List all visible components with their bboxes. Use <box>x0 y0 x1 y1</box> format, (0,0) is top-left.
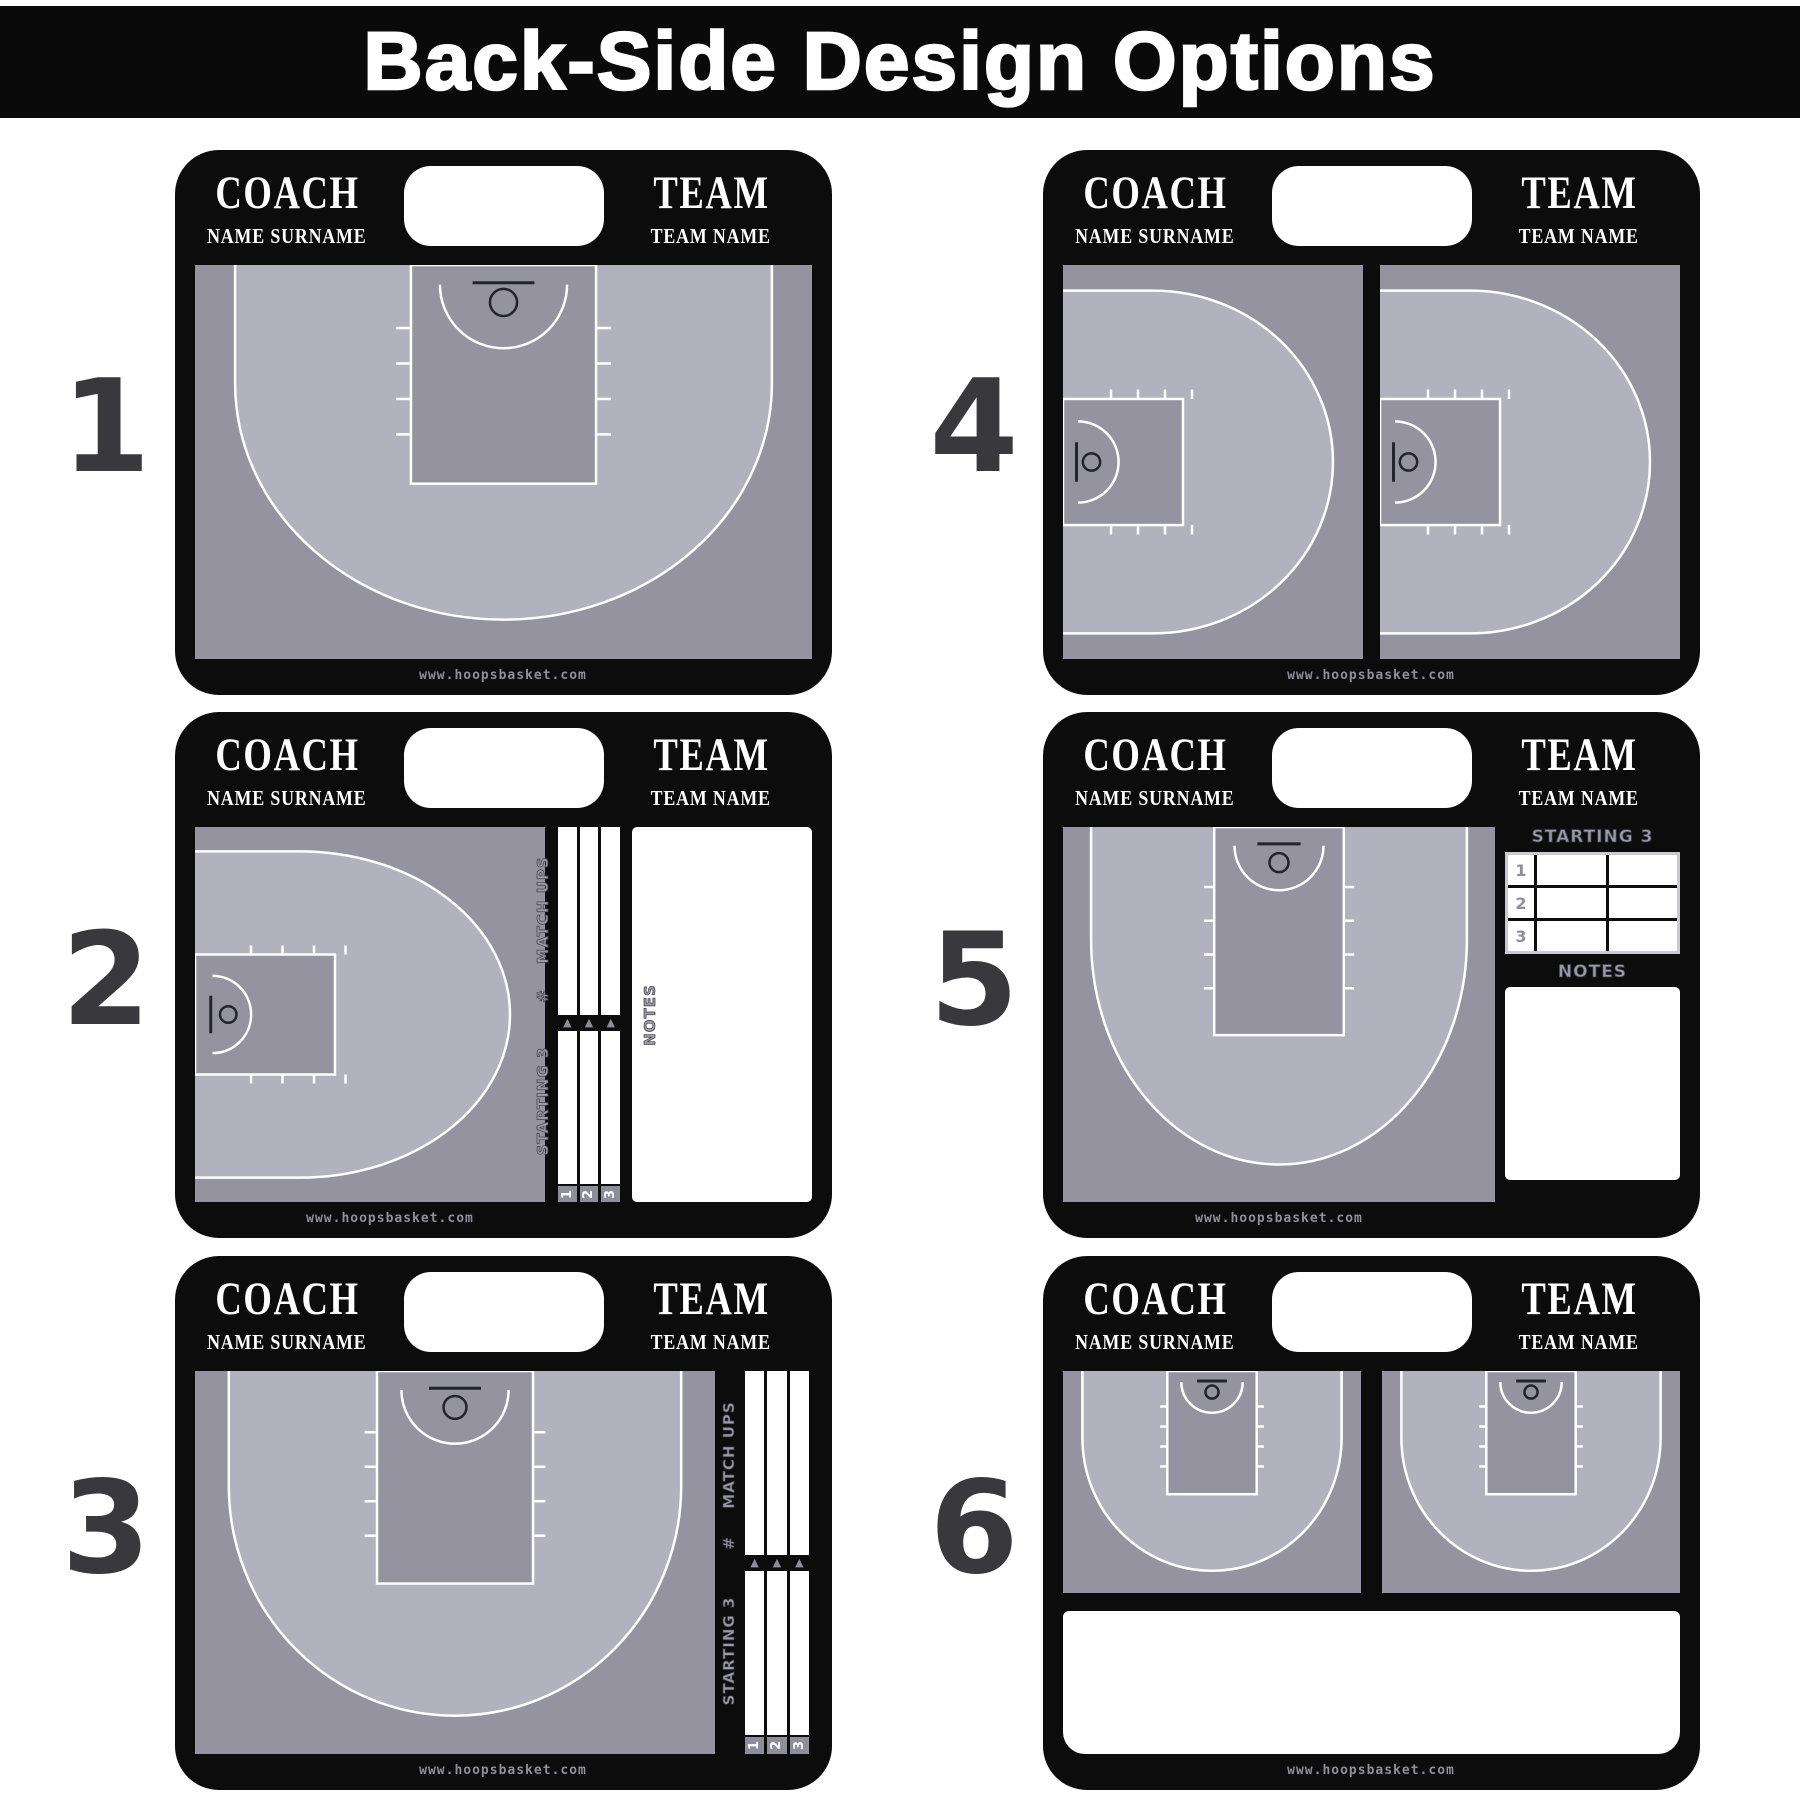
team-name: TEAM NAME <box>1519 224 1639 249</box>
writein-cell <box>1537 855 1606 885</box>
website-url: www.hoopsbasket.com <box>1079 1211 1479 1229</box>
page-title: Back-Side Design Options <box>363 15 1436 109</box>
writein-column <box>745 1571 764 1735</box>
writein-column <box>580 1031 599 1184</box>
coach-label: COACH <box>215 1272 359 1326</box>
team-label: TEAM <box>1521 728 1637 782</box>
slot-number: 1 <box>745 1737 764 1754</box>
design-option-4-board: COACH NAME SURNAME TEAM TEAM NAME www.ho… <box>1043 150 1700 695</box>
website-url: www.hoopsbasket.com <box>1171 668 1571 686</box>
halfcourt-top-diagram <box>1063 827 1495 1202</box>
team-label: TEAM <box>1521 1272 1637 1326</box>
team-header: TEAM TEAM NAME <box>1469 166 1689 249</box>
coach-name: NAME SURNAME <box>1075 1330 1234 1355</box>
option-number: 4 <box>904 353 1044 503</box>
starting3-label: STARTING 3 <box>534 1046 552 1155</box>
writein-column <box>601 1031 620 1184</box>
matchups-label: MATCH UPS <box>534 856 552 963</box>
up-triangle-icon: ▲ <box>601 1015 620 1031</box>
option-number: 3 <box>36 1453 176 1603</box>
board-body <box>1063 265 1680 659</box>
coach-header: COACH NAME SURNAME <box>177 1272 397 1355</box>
writein-column <box>790 1571 809 1735</box>
coach-header: COACH NAME SURNAME <box>1045 166 1265 249</box>
halfcourt-side-diagram <box>195 827 545 1202</box>
design-option-5-board: COACH NAME SURNAME TEAM TEAM NAME STARTI… <box>1043 712 1700 1238</box>
slot-number: 2 <box>580 1186 599 1202</box>
notes-label: NOTES <box>641 984 659 1046</box>
starting3-label: STARTING 3 <box>1505 827 1680 847</box>
writein-cell <box>1609 921 1678 951</box>
team-label: TEAM <box>653 1272 769 1326</box>
coach-label: COACH <box>215 728 359 782</box>
table-row: 2 <box>1508 888 1677 918</box>
halfcourt-top-diagram <box>1382 1371 1680 1593</box>
slot-number: 2 <box>767 1737 786 1754</box>
team-label: TEAM <box>1521 166 1637 220</box>
handle-cutout <box>1272 728 1472 808</box>
coach-name: NAME SURNAME <box>207 224 366 249</box>
team-header: TEAM TEAM NAME <box>601 166 821 249</box>
coach-header: COACH NAME SURNAME <box>177 166 397 249</box>
option-number: 1 <box>36 353 176 503</box>
halfcourt-side-diagram <box>1063 265 1363 659</box>
team-name: TEAM NAME <box>651 224 771 249</box>
team-label: TEAM <box>653 166 769 220</box>
up-triangle-icon: ▲ <box>790 1555 809 1571</box>
slot-number: 3 <box>790 1737 809 1754</box>
team-header: TEAM TEAM NAME <box>1469 728 1689 811</box>
website-url: www.hoopsbasket.com <box>1171 1763 1571 1781</box>
design-option-2-board: COACH NAME SURNAME TEAM TEAM NAME MATCH … <box>175 712 832 1238</box>
up-triangle-icon: ▲ <box>580 1015 599 1031</box>
coach-label: COACH <box>215 166 359 220</box>
row-number: 2 <box>1508 888 1534 918</box>
board-body: STARTING 3 1 2 <box>1063 827 1680 1202</box>
row-number: 1 <box>1508 855 1534 885</box>
handle-cutout <box>404 728 604 808</box>
team-name: TEAM NAME <box>1519 1330 1639 1355</box>
website-url: www.hoopsbasket.com <box>303 1763 703 1781</box>
notes-area <box>1063 1611 1680 1754</box>
team-name: TEAM NAME <box>651 786 771 811</box>
writein-column <box>767 1571 786 1735</box>
team-name: TEAM NAME <box>651 1330 771 1355</box>
slot-number: 1 <box>558 1186 577 1202</box>
handle-cutout <box>1272 1272 1472 1352</box>
website-url: www.hoopsbasket.com <box>303 668 703 686</box>
website-url: www.hoopsbasket.com <box>190 1211 590 1229</box>
title-banner: Back-Side Design Options <box>0 6 1800 118</box>
board-body: MATCH UPS # STARTING 3 ▲▲▲ 123 <box>195 1371 812 1754</box>
sidebar-labels: MATCH UPS # STARTING 3 <box>530 827 556 1202</box>
writein-column <box>558 827 577 1015</box>
design-option-6-board: COACH NAME SURNAME TEAM TEAM NAME www.ho… <box>1043 1256 1700 1790</box>
writein-column <box>580 827 599 1015</box>
matchup-columns: ▲▲▲ 123 <box>745 1371 809 1754</box>
coach-name: NAME SURNAME <box>207 1330 366 1355</box>
halfcourt-top-diagram <box>195 1371 715 1754</box>
starting3-label: STARTING 3 <box>720 1596 738 1705</box>
design-option-1-board: COACH NAME SURNAME TEAM TEAM NAME www.ho… <box>175 150 832 695</box>
writein-column <box>558 1031 577 1184</box>
writein-cell <box>1609 888 1678 918</box>
halfcourt-top-diagram <box>1063 1371 1361 1593</box>
writein-cell <box>1537 921 1606 951</box>
coach-header: COACH NAME SURNAME <box>1045 728 1265 811</box>
coach-label: COACH <box>1083 166 1227 220</box>
row-number: 3 <box>1508 921 1534 951</box>
writein-column <box>745 1371 764 1555</box>
team-name: TEAM NAME <box>1519 786 1639 811</box>
option-number: 5 <box>904 905 1044 1055</box>
team-header: TEAM TEAM NAME <box>601 728 821 811</box>
handle-cutout <box>404 1272 604 1352</box>
team-header: TEAM TEAM NAME <box>1469 1272 1689 1355</box>
writein-column <box>767 1371 786 1555</box>
team-header: TEAM TEAM NAME <box>601 1272 821 1355</box>
number-sign-label: # <box>720 1537 738 1551</box>
option-number: 2 <box>36 905 176 1055</box>
coach-name: NAME SURNAME <box>1075 224 1234 249</box>
coach-name: NAME SURNAME <box>207 786 366 811</box>
table-row: 3 <box>1508 921 1677 951</box>
option-number: 6 <box>904 1453 1044 1603</box>
table-row: 1 <box>1508 855 1677 885</box>
writein-cell <box>1537 888 1606 918</box>
design-option-3-board: COACH NAME SURNAME TEAM TEAM NAME MATCH … <box>175 1256 832 1790</box>
slot-number: 3 <box>601 1186 620 1202</box>
starting3-table: 1 2 3 <box>1505 852 1680 954</box>
writein-column <box>790 1371 809 1555</box>
board-body <box>195 265 812 659</box>
handle-cutout <box>404 166 604 246</box>
board-body <box>1063 1371 1680 1754</box>
writein-cell <box>1609 855 1678 885</box>
number-sign-label: # <box>534 989 552 1003</box>
up-triangle-icon: ▲ <box>558 1015 577 1031</box>
coach-header: COACH NAME SURNAME <box>1045 1272 1265 1355</box>
coach-header: COACH NAME SURNAME <box>177 728 397 811</box>
notes-label: NOTES <box>1505 962 1680 982</box>
notes-area <box>1505 987 1680 1180</box>
notes-area: NOTES <box>632 827 812 1202</box>
coach-label: COACH <box>1083 1272 1227 1326</box>
writein-column <box>601 827 620 1015</box>
up-triangle-icon: ▲ <box>745 1555 764 1571</box>
team-label: TEAM <box>653 728 769 782</box>
coach-name: NAME SURNAME <box>1075 786 1234 811</box>
board-body: MATCH UPS # STARTING 3 ▲▲▲ 123 NOTES <box>195 827 812 1202</box>
handle-cutout <box>1272 166 1472 246</box>
starting3-notes-sidebar: STARTING 3 1 2 <box>1505 827 1680 1202</box>
matchups-label: MATCH UPS <box>720 1402 738 1509</box>
sidebar-labels: MATCH UPS # STARTING 3 <box>715 1371 743 1754</box>
up-triangle-icon: ▲ <box>767 1555 786 1571</box>
halfcourt-top-diagram <box>195 265 812 659</box>
coach-label: COACH <box>1083 728 1227 782</box>
matchup-columns: ▲▲▲ 123 <box>558 827 620 1202</box>
halfcourt-side-diagram <box>1380 265 1680 659</box>
